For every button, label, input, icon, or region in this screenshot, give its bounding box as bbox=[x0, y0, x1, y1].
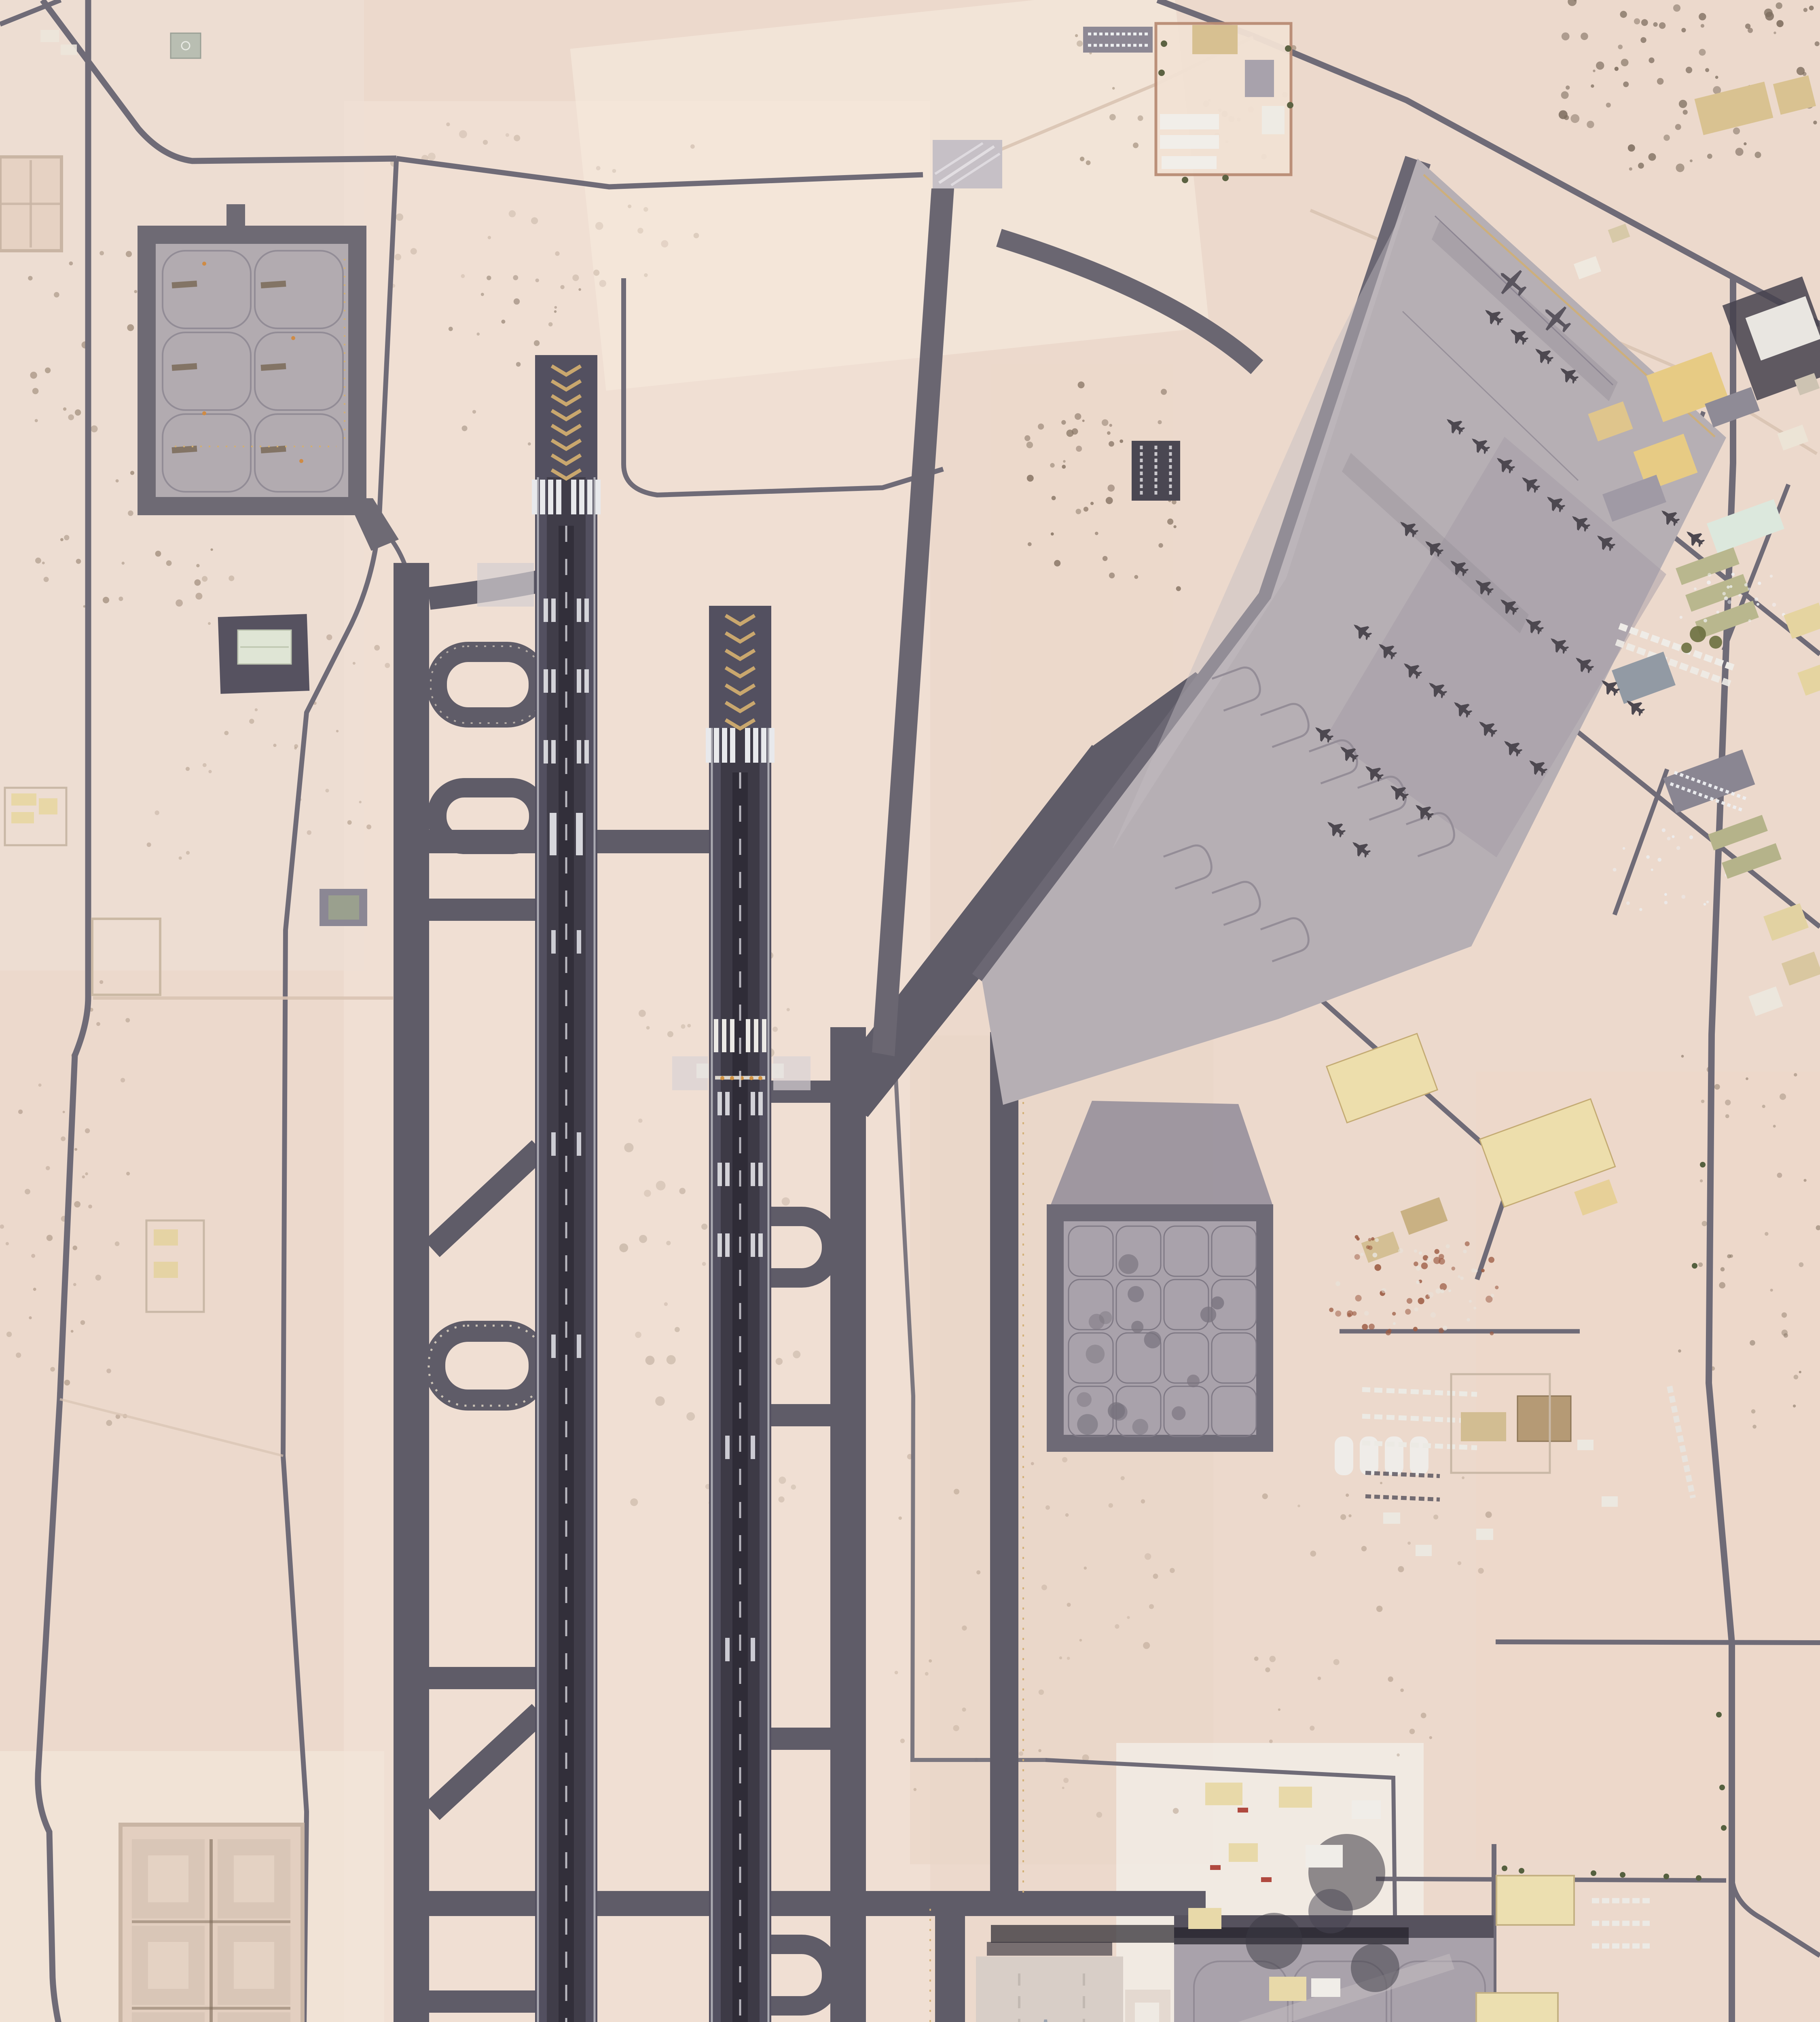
terrain-speck bbox=[1361, 1546, 1367, 1551]
terrain-speck bbox=[1716, 611, 1719, 613]
terrain-speck bbox=[1062, 465, 1066, 469]
terrain-speck bbox=[1794, 1073, 1797, 1077]
terrain-speck bbox=[196, 564, 199, 567]
terrain-speck bbox=[1278, 1709, 1280, 1711]
terrain-speck bbox=[1700, 1179, 1703, 1182]
north-compound-circ bbox=[1161, 40, 1167, 47]
terrain-speck bbox=[1106, 497, 1113, 504]
fuel-depot-circ bbox=[1351, 1944, 1399, 1992]
west-structures-rect bbox=[148, 1942, 188, 1989]
airfield-taxiways-rect bbox=[429, 1990, 538, 2013]
runways-circ bbox=[758, 1076, 762, 1080]
terrain-speck bbox=[1041, 1584, 1047, 1590]
terrain-speck bbox=[1758, 582, 1761, 585]
terrain-speck bbox=[1368, 1238, 1371, 1241]
terrain-speck bbox=[679, 1188, 686, 1194]
north-compound-circ bbox=[1287, 102, 1293, 108]
terrain-speck bbox=[1371, 1237, 1374, 1240]
terrain-speck bbox=[1694, 588, 1697, 590]
terrain-speck bbox=[1646, 855, 1650, 859]
terrain-speck bbox=[1704, 619, 1707, 622]
terrain-speck bbox=[1452, 1267, 1456, 1271]
terrain-speck bbox=[462, 425, 468, 431]
buildings-east-warehouses-rect bbox=[1335, 1436, 1353, 1475]
runways-rect bbox=[696, 1064, 709, 1078]
terrain-speck bbox=[644, 273, 648, 277]
terrain-speck bbox=[116, 479, 119, 482]
terrain-speck bbox=[1748, 619, 1751, 622]
north-compound-rect bbox=[1160, 114, 1219, 129]
buildings-east-warehouses-rect bbox=[1602, 1496, 1618, 1507]
logistics-district-circ bbox=[1700, 1162, 1706, 1168]
north-compound-rect bbox=[1162, 156, 1217, 169]
terrain-speck bbox=[954, 1489, 959, 1495]
touchdown-zone-marking bbox=[551, 930, 556, 954]
terrain-speck bbox=[1369, 1324, 1375, 1330]
terrain-speck bbox=[1065, 1513, 1069, 1517]
touchdown-zone-marking bbox=[751, 1092, 755, 1115]
terrain-speck bbox=[6, 1242, 9, 1245]
terrain-speck bbox=[99, 980, 103, 984]
terrain-speck bbox=[1108, 484, 1115, 492]
runways-rect bbox=[477, 563, 534, 607]
terrain-speck bbox=[667, 1355, 676, 1364]
terrain-speck bbox=[1026, 442, 1033, 448]
piano-key-marking bbox=[754, 1019, 758, 1052]
terrain-speck bbox=[1460, 1277, 1464, 1280]
terrain-speck bbox=[1354, 1254, 1360, 1260]
terrain-speck bbox=[1109, 424, 1112, 427]
airfield-taxiways-rect bbox=[990, 1032, 1018, 1914]
terrain-speck bbox=[1659, 22, 1666, 29]
terrain-speck bbox=[122, 562, 125, 565]
terrain-speck bbox=[1628, 144, 1635, 152]
terrain-speck bbox=[1440, 1289, 1444, 1293]
terrain-speck bbox=[449, 327, 453, 331]
terrain-speck bbox=[1777, 1173, 1782, 1178]
terrain-speck bbox=[1593, 70, 1595, 72]
terrain-speck bbox=[1416, 1266, 1421, 1271]
fuel-depot-circ bbox=[1308, 1889, 1353, 1933]
fuel-depot-rect bbox=[1279, 1787, 1312, 1808]
terrain-speck bbox=[639, 1010, 646, 1017]
terrain-speck bbox=[1702, 1221, 1707, 1226]
terrain-speck bbox=[1782, 1330, 1788, 1336]
north-compound-circ bbox=[1222, 175, 1229, 181]
logistics-district-rect bbox=[1496, 1876, 1574, 1925]
north-compound-rect bbox=[1245, 60, 1274, 97]
terrain-speck bbox=[1570, 114, 1579, 123]
terrain-speck bbox=[1679, 100, 1687, 108]
terrain-speck bbox=[1490, 1331, 1494, 1335]
touchdown-zone-marking bbox=[717, 1163, 722, 1186]
terrain-speck bbox=[555, 251, 559, 256]
terrain-speck bbox=[249, 719, 254, 723]
terrain-speck bbox=[548, 322, 553, 327]
terrain-speck bbox=[1421, 1713, 1426, 1718]
terrain-speck bbox=[1587, 121, 1594, 128]
terrain-speck bbox=[1038, 1749, 1041, 1752]
piano-key-marking bbox=[753, 728, 758, 763]
terrain-speck bbox=[47, 1235, 53, 1241]
terrain-speck bbox=[1772, 603, 1776, 607]
terrain-speck bbox=[396, 214, 403, 221]
fuel-depot-rect bbox=[1205, 1783, 1242, 1805]
terrain-speck bbox=[1486, 1512, 1492, 1518]
terrain-speck bbox=[1364, 1311, 1369, 1316]
terrain-speck bbox=[776, 1358, 783, 1365]
terrain-speck bbox=[96, 1022, 100, 1026]
north-compound-rect bbox=[1262, 106, 1285, 134]
touchdown-zone-marking bbox=[751, 1436, 755, 1459]
terrain-speck bbox=[1063, 1778, 1069, 1783]
terrain-speck bbox=[1262, 1493, 1268, 1499]
terrain-speck bbox=[779, 1476, 786, 1484]
west-structures-rect bbox=[39, 798, 57, 814]
touchdown-zone-marking bbox=[584, 740, 589, 764]
terrain-speck bbox=[1086, 1345, 1105, 1364]
terrain-speck bbox=[772, 1027, 778, 1032]
logistics-district-circ bbox=[1696, 1875, 1701, 1881]
terrain-speck bbox=[1738, 594, 1741, 597]
runways-circ bbox=[720, 1076, 724, 1080]
terrain-speck bbox=[446, 123, 450, 126]
terrain-speck bbox=[186, 767, 190, 771]
terrain-speck bbox=[1678, 1349, 1681, 1353]
terrain-speck bbox=[1649, 153, 1656, 161]
terrain-speck bbox=[125, 1018, 130, 1022]
terrain-speck bbox=[194, 580, 201, 586]
terrain-speck bbox=[255, 708, 258, 711]
fuel-depot-rect bbox=[1261, 1877, 1272, 1882]
terrain-speck bbox=[1419, 1252, 1422, 1255]
terrain-speck bbox=[514, 135, 520, 141]
terrain-speck bbox=[1348, 1514, 1351, 1517]
fuel-depot-rect bbox=[1229, 1843, 1258, 1862]
terrain-speck bbox=[513, 275, 518, 280]
piano-key-marking bbox=[714, 728, 719, 763]
terrain-speck bbox=[1128, 1286, 1144, 1302]
fuel-depot-rect bbox=[1238, 1808, 1248, 1813]
terrain-speck bbox=[1615, 67, 1619, 71]
terrain-speck bbox=[1418, 1298, 1424, 1304]
terrain-speck bbox=[554, 310, 557, 313]
terrain-speck bbox=[646, 1026, 650, 1030]
terrain-speck bbox=[506, 133, 509, 137]
terrain-speck bbox=[1427, 1257, 1432, 1262]
terrain-speck bbox=[1723, 592, 1726, 596]
terrain-speck bbox=[578, 288, 581, 291]
terrain-speck bbox=[229, 575, 234, 581]
terrain-speck bbox=[326, 635, 332, 640]
west-structures-rect bbox=[154, 1262, 178, 1278]
terrain-speck bbox=[1657, 78, 1664, 85]
terrain-speck bbox=[1629, 167, 1632, 171]
buildings-east-warehouses-rect bbox=[1476, 1529, 1493, 1540]
touchdown-zone-marking bbox=[751, 1233, 755, 1257]
terrain-speck bbox=[1799, 1371, 1801, 1373]
touchdown-zone-marking bbox=[544, 599, 548, 622]
terrain-speck bbox=[1024, 435, 1030, 441]
terrain-speck bbox=[1405, 1309, 1411, 1314]
terrain-speck bbox=[1392, 1312, 1396, 1316]
terrain-speck bbox=[560, 285, 564, 289]
terrain-speck bbox=[1254, 1656, 1259, 1661]
terrain-speck bbox=[628, 205, 631, 208]
terrain-speck bbox=[1446, 1244, 1450, 1248]
terrain-speck bbox=[779, 1496, 785, 1502]
buildings-east-warehouses-rect bbox=[1383, 1512, 1400, 1524]
piano-key-marking bbox=[730, 1019, 734, 1052]
terrain-speck bbox=[900, 1739, 905, 1743]
terrain-speck bbox=[1400, 1688, 1404, 1692]
terrain-speck bbox=[273, 744, 276, 747]
terrain-speck bbox=[1664, 901, 1668, 905]
terrain-speck bbox=[1361, 1253, 1364, 1256]
touchdown-zone-marking bbox=[577, 669, 581, 693]
touchdown-zone-marking bbox=[584, 669, 589, 693]
piano-key-marking bbox=[556, 480, 561, 514]
terrain-speck bbox=[1090, 502, 1094, 505]
terrain-speck bbox=[534, 340, 540, 346]
terrain-speck bbox=[1061, 420, 1066, 425]
terrain-speck bbox=[1623, 847, 1625, 850]
terrain-speck bbox=[962, 1626, 967, 1631]
terrain-speck bbox=[1681, 28, 1686, 32]
airfield-taxiways-rect bbox=[770, 1404, 831, 1426]
terrain-speck bbox=[1086, 161, 1091, 165]
buildings-east-warehouses-rect bbox=[1577, 1440, 1594, 1450]
terrain-speck bbox=[1141, 1499, 1145, 1504]
west-structures-rect bbox=[154, 1229, 178, 1246]
terrain-speck bbox=[1748, 28, 1753, 33]
logistics-district-circ bbox=[1620, 1872, 1625, 1878]
terrain-speck bbox=[1719, 1282, 1725, 1288]
north-compound-circ bbox=[1182, 177, 1188, 183]
terrain-speck bbox=[1269, 1739, 1273, 1743]
terrain-speck bbox=[554, 306, 557, 309]
terrain-speck bbox=[624, 1143, 633, 1152]
logistics-district-circ bbox=[1663, 1874, 1669, 1879]
terrain-speck bbox=[1050, 463, 1054, 467]
terrain-speck bbox=[1744, 583, 1748, 586]
terrain-speck bbox=[1398, 1566, 1404, 1572]
buildings-northeast-district-circ bbox=[1681, 643, 1692, 653]
airfield-taxiways-rect bbox=[770, 1728, 831, 1750]
terrain-speck bbox=[472, 410, 476, 414]
terrain-speck bbox=[1762, 1105, 1765, 1108]
terrain-speck bbox=[1329, 1308, 1333, 1312]
touchdown-zone-marking bbox=[577, 1335, 581, 1358]
terrain-speck bbox=[1799, 1262, 1804, 1267]
terrain-speck bbox=[18, 1110, 23, 1114]
terrain-speck bbox=[126, 1172, 130, 1176]
touchdown-zone-marking bbox=[577, 1132, 581, 1156]
terrain-speck bbox=[1803, 8, 1807, 12]
terrain-speck bbox=[1458, 1275, 1460, 1278]
touchdown-zone-marking bbox=[551, 1335, 556, 1358]
terrain-speck bbox=[1173, 1808, 1179, 1814]
terrain-speck bbox=[661, 240, 668, 247]
terrain-speck bbox=[76, 559, 81, 564]
terrain-speck bbox=[1388, 1329, 1392, 1333]
terrain-speck bbox=[1144, 1331, 1162, 1349]
terrain-speck bbox=[347, 820, 352, 825]
terrain-speck bbox=[1080, 157, 1084, 161]
terrain-speck bbox=[106, 1420, 112, 1426]
touchdown-zone-marking bbox=[577, 740, 581, 764]
terrain-speck bbox=[1773, 1125, 1776, 1127]
terrain-speck bbox=[1641, 19, 1648, 26]
terrain-speck bbox=[1297, 1505, 1300, 1508]
terrain-speck bbox=[1173, 525, 1176, 528]
terrain-speck bbox=[1398, 1248, 1403, 1253]
terrain-speck bbox=[1059, 1656, 1062, 1659]
terrain-speck bbox=[1388, 1677, 1393, 1682]
terrain-speck bbox=[929, 1659, 932, 1662]
buildings-northeast-district-circ bbox=[1709, 636, 1722, 649]
terrain-speck bbox=[1176, 586, 1181, 591]
terrain-speck bbox=[1699, 13, 1706, 20]
fuel-depot-rect bbox=[1306, 1845, 1343, 1868]
terrain-speck bbox=[1077, 1392, 1092, 1407]
terrain-speck bbox=[1416, 1280, 1420, 1284]
terrain-speck bbox=[1725, 1114, 1729, 1118]
terrain-speck bbox=[1733, 127, 1740, 134]
terrain-speck bbox=[1429, 1736, 1432, 1739]
terrain-speck bbox=[1127, 1616, 1130, 1619]
terrain-speck bbox=[1076, 446, 1082, 452]
terrain-speck bbox=[91, 425, 97, 432]
terrain-speck bbox=[675, 1327, 680, 1332]
terrain-speck bbox=[45, 368, 51, 373]
terrain-speck bbox=[481, 293, 484, 296]
terrain-speck bbox=[914, 1788, 917, 1791]
terrain-speck bbox=[1724, 596, 1728, 601]
terrain-speck bbox=[395, 254, 401, 260]
terrain-speck bbox=[1111, 1404, 1128, 1421]
terrain-speck bbox=[1714, 1084, 1720, 1090]
terrain-speck bbox=[1662, 828, 1666, 832]
terrain-speck bbox=[30, 372, 37, 379]
west-structures-rect bbox=[11, 812, 34, 823]
terrain-speck bbox=[6, 1332, 12, 1337]
fuel-depot-circ bbox=[1246, 1913, 1302, 1969]
terrain-speck bbox=[1366, 1245, 1370, 1249]
terrain-speck bbox=[1051, 533, 1054, 536]
touchdown-zone-marking bbox=[758, 1163, 763, 1186]
piano-key-marking bbox=[761, 728, 766, 763]
terrain-speck bbox=[1131, 1321, 1143, 1333]
fuel-depot-rect bbox=[1210, 1865, 1221, 1870]
terrain-speck bbox=[1112, 87, 1115, 90]
terrain-speck bbox=[1651, 869, 1653, 871]
piano-key-marking bbox=[548, 480, 553, 514]
terrain-speck bbox=[1172, 1406, 1185, 1420]
terrain-speck bbox=[1062, 1457, 1067, 1462]
terrain-speck bbox=[147, 842, 151, 847]
terrain-speck bbox=[1667, 837, 1671, 840]
terrain-speck bbox=[635, 1332, 641, 1338]
terrain-speck bbox=[1376, 1606, 1383, 1612]
terrain-speck bbox=[54, 292, 59, 298]
terrain-speck bbox=[1109, 441, 1114, 447]
terrain-speck bbox=[1727, 600, 1731, 604]
terrain-speck bbox=[1393, 1322, 1396, 1325]
terrain-speck bbox=[99, 251, 104, 256]
terrain-speck bbox=[1045, 1505, 1050, 1510]
terrain-speck bbox=[595, 222, 603, 230]
terrain-speck bbox=[68, 415, 74, 421]
terrain-speck bbox=[1134, 575, 1138, 579]
west-structures-rect bbox=[234, 1855, 274, 1902]
terrain-speck bbox=[64, 535, 69, 540]
terrain-speck bbox=[1407, 1542, 1411, 1545]
airfield-taxiways-rect bbox=[394, 563, 429, 2022]
terrain-speck bbox=[953, 1725, 959, 1731]
terrain-speck bbox=[483, 140, 488, 145]
terrain-speck bbox=[69, 262, 73, 266]
west-structures-rect bbox=[218, 2012, 290, 2022]
terrain-speck bbox=[33, 1288, 36, 1291]
terrain-speck bbox=[46, 1166, 50, 1170]
terrain-speck bbox=[121, 1078, 125, 1082]
buildings-east-warehouses-rect bbox=[1461, 1412, 1506, 1441]
terrain-speck bbox=[385, 663, 390, 668]
fuel-depot-rect bbox=[1188, 1908, 1221, 1929]
north-compound-circ bbox=[1285, 45, 1291, 52]
terrain-speck bbox=[1561, 91, 1569, 99]
terrain-speck bbox=[1270, 1656, 1276, 1662]
piano-key-marking bbox=[706, 728, 711, 763]
terrain-speck bbox=[1103, 556, 1108, 561]
terrain-speck bbox=[1099, 1311, 1112, 1324]
terrain-speck bbox=[1623, 82, 1629, 87]
terrain-speck bbox=[1170, 1568, 1175, 1573]
terrain-speck bbox=[1054, 560, 1060, 567]
terrain-speck bbox=[1663, 135, 1670, 141]
west-structures-rect bbox=[132, 2012, 205, 2022]
terrain-speck bbox=[599, 280, 606, 287]
terrain-speck bbox=[1431, 1312, 1436, 1318]
terrain-speck bbox=[1715, 76, 1718, 79]
terrain-speck bbox=[701, 1224, 707, 1230]
terrain-speck bbox=[1707, 580, 1711, 584]
terrain-speck bbox=[71, 1330, 74, 1333]
terrain-speck bbox=[155, 551, 161, 557]
terrain-speck bbox=[645, 1356, 655, 1365]
terrain-speck bbox=[1039, 1690, 1044, 1695]
touchdown-zone-marking bbox=[717, 1233, 722, 1257]
terrain-speck bbox=[1428, 1292, 1434, 1298]
terrain-speck bbox=[1138, 115, 1143, 121]
terrain-speck bbox=[1471, 1268, 1475, 1272]
terrain-speck bbox=[501, 319, 505, 324]
terrain-speck bbox=[208, 622, 211, 625]
touchdown-zone-marking bbox=[550, 813, 557, 855]
terrain-speck bbox=[42, 562, 45, 565]
terrain-speck bbox=[1725, 1100, 1731, 1105]
terrain-speck bbox=[208, 770, 212, 773]
terrain-speck bbox=[130, 471, 134, 475]
terrain-speck bbox=[1084, 1567, 1087, 1570]
terrain-speck bbox=[1754, 597, 1758, 601]
terrain-speck bbox=[166, 560, 172, 566]
terrain-speck bbox=[459, 130, 467, 138]
terrain-speck bbox=[1473, 1307, 1476, 1309]
terrain-speck bbox=[1770, 1289, 1773, 1292]
piano-key-marking bbox=[595, 480, 601, 514]
